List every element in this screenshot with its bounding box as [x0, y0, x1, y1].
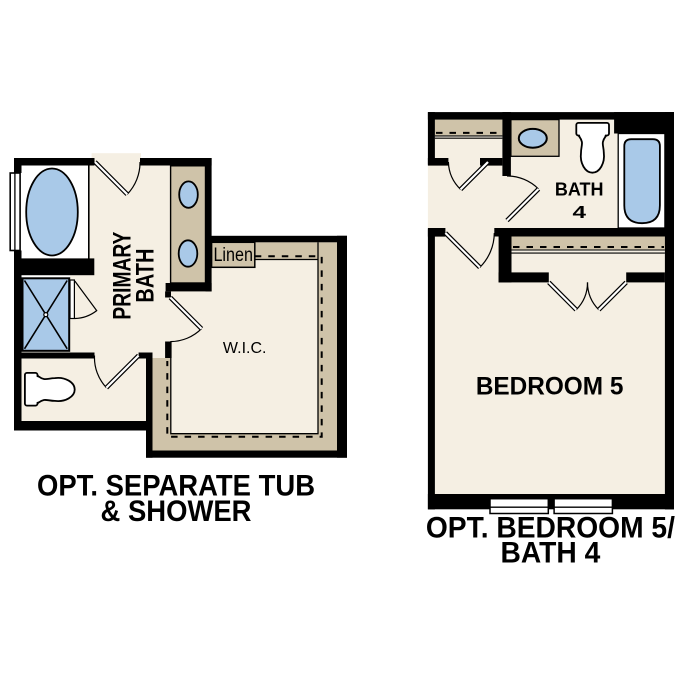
svg-text:& SHOWER: & SHOWER	[101, 495, 252, 528]
svg-text:4: 4	[572, 202, 586, 222]
svg-text:BATH: BATH	[555, 179, 604, 199]
svg-text:BEDROOM 5: BEDROOM 5	[476, 372, 624, 401]
svg-text:BATH: BATH	[130, 249, 159, 303]
svg-text:BATH 4: BATH 4	[501, 537, 602, 570]
svg-text:Linen: Linen	[213, 244, 252, 266]
svg-text:W.I.C.: W.I.C.	[223, 340, 267, 357]
